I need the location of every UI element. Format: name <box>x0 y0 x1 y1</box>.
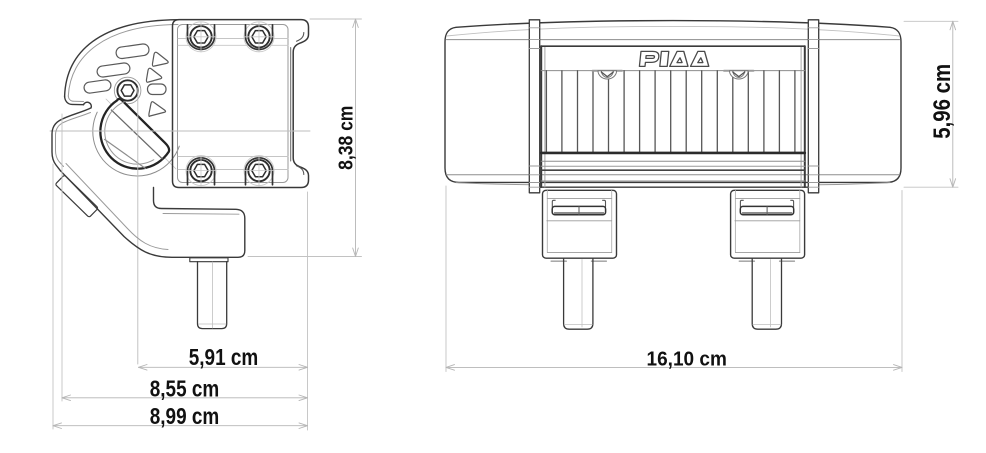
svg-text:8,38 cm: 8,38 cm <box>334 106 357 170</box>
svg-text:5,91 cm: 5,91 cm <box>189 344 259 370</box>
svg-text:8,99 cm: 8,99 cm <box>150 403 220 429</box>
svg-text:8,55 cm: 8,55 cm <box>150 375 220 401</box>
svg-text:16,10 cm: 16,10 cm <box>647 347 727 370</box>
svg-text:5,96 cm: 5,96 cm <box>929 64 956 139</box>
